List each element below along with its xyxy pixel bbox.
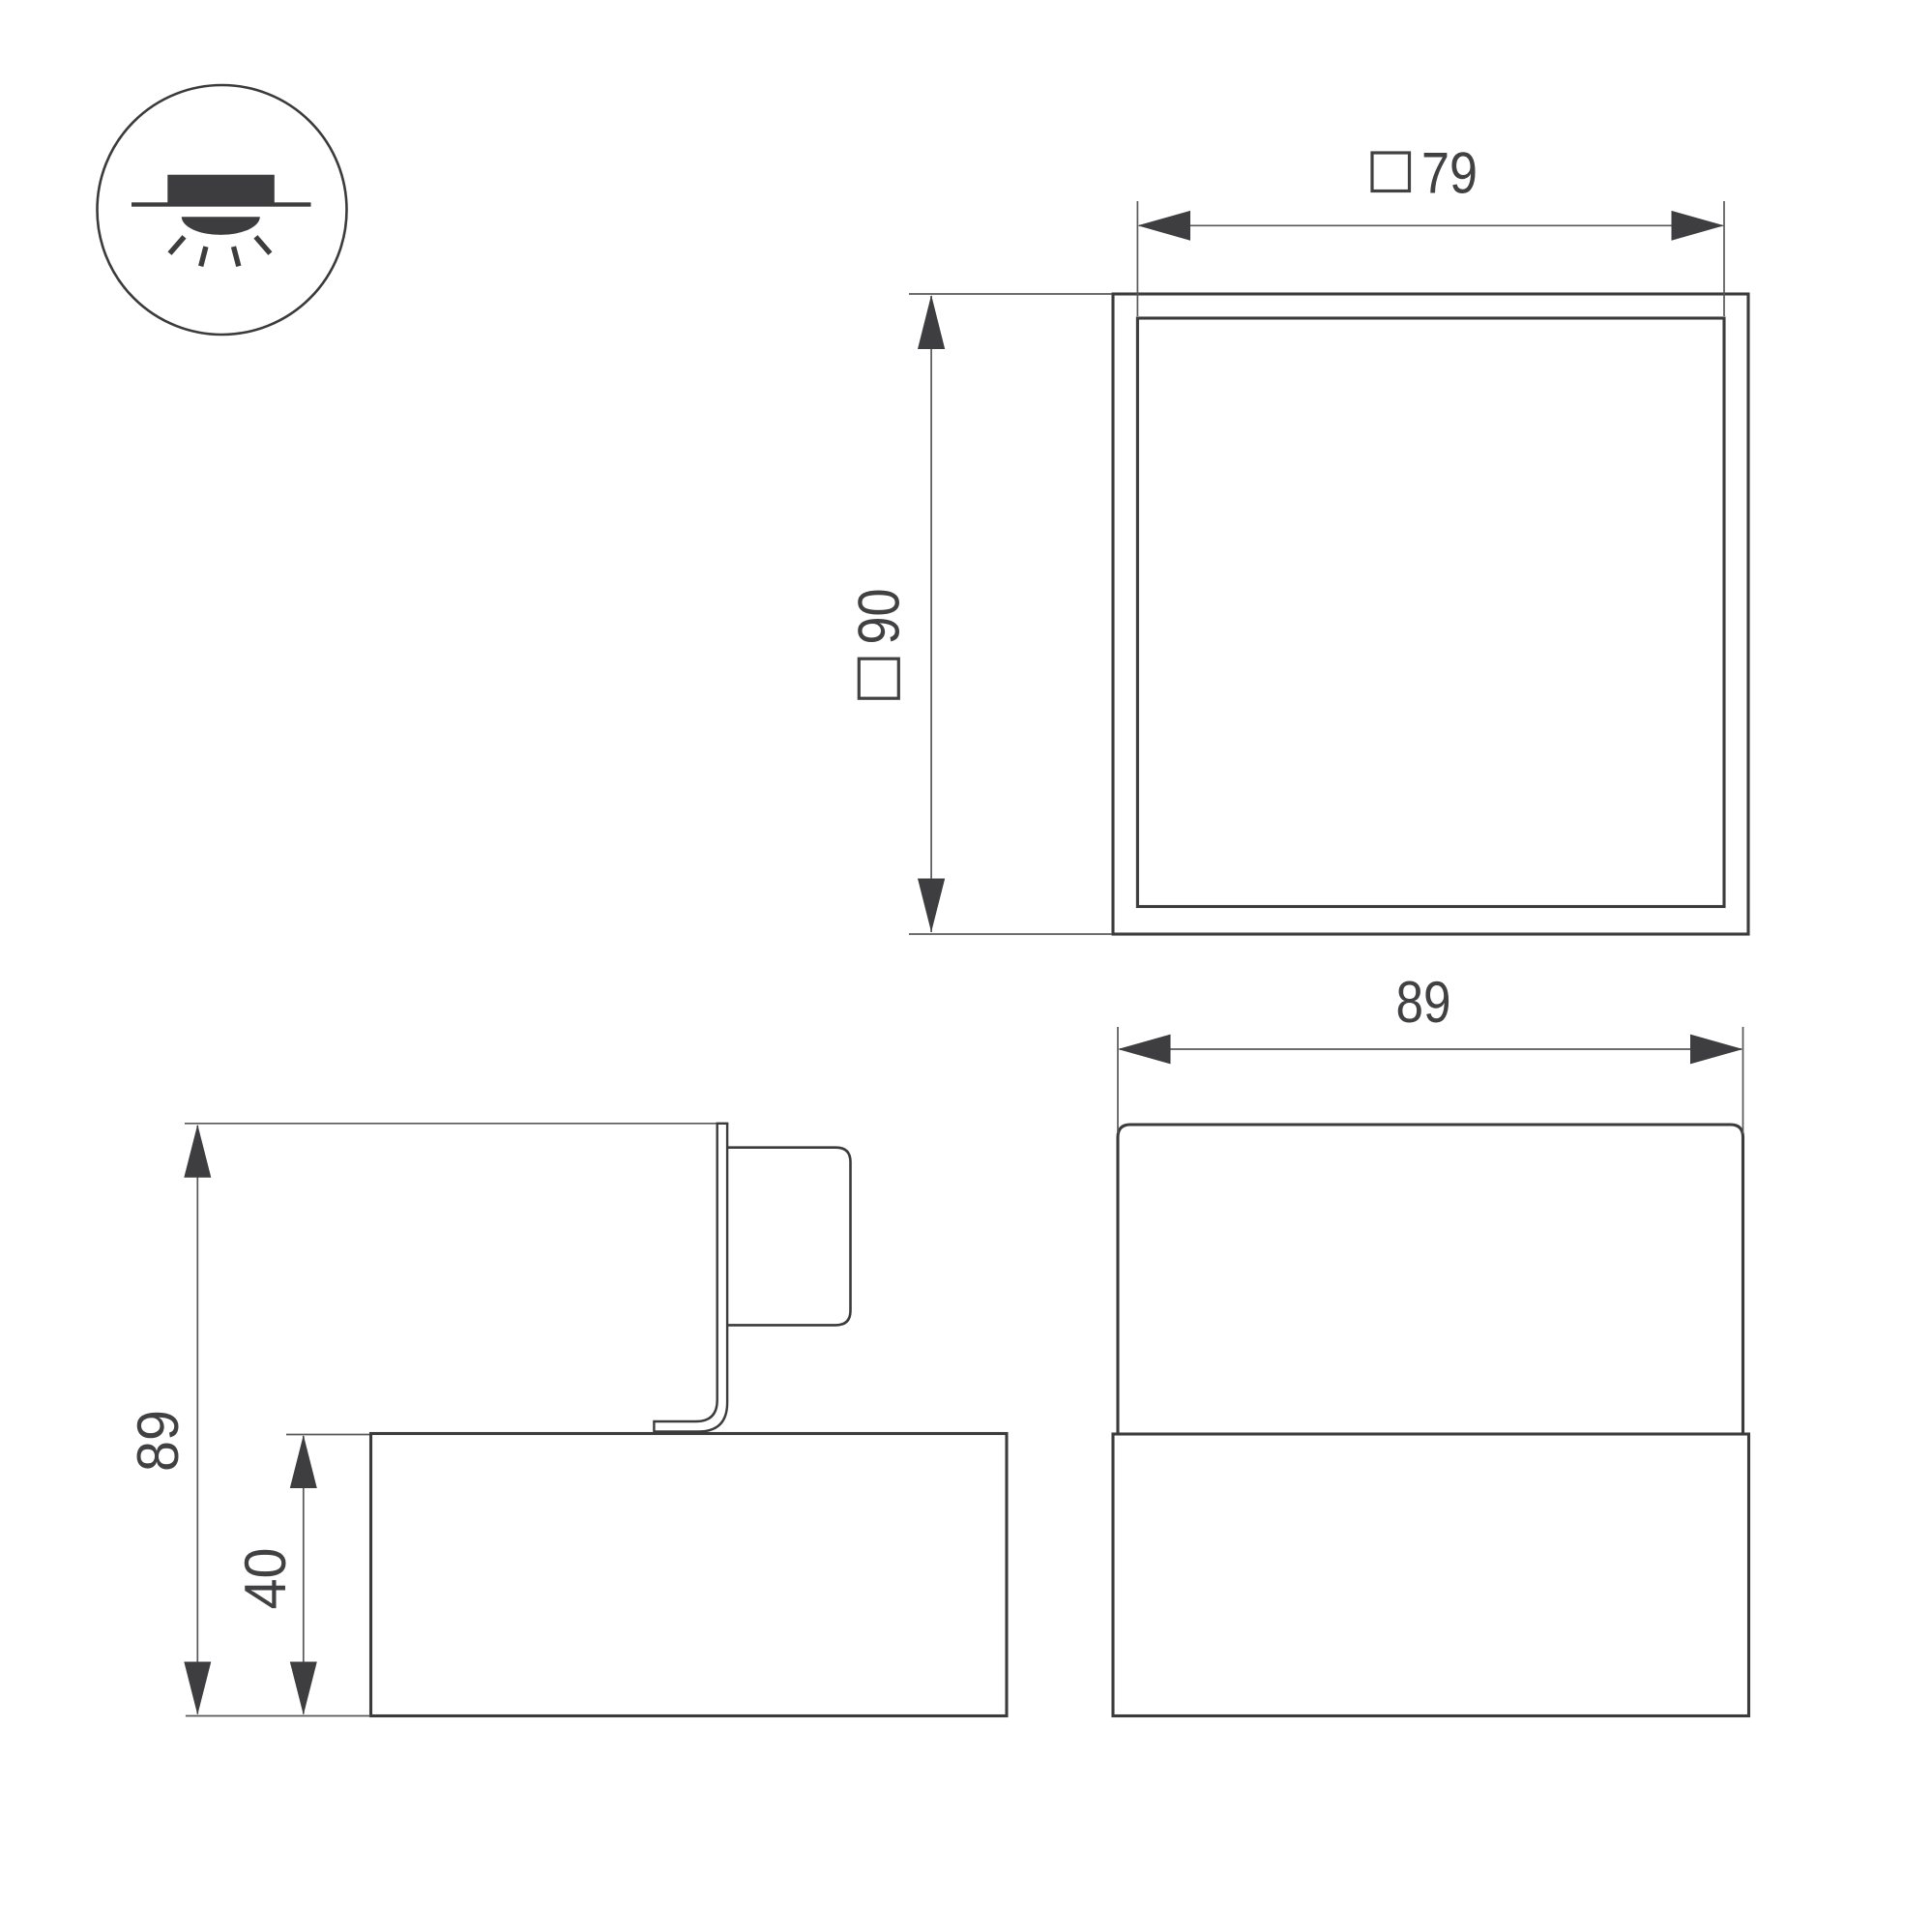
svg-text:89: 89 <box>125 1410 190 1472</box>
svg-text:90: 90 <box>846 589 912 645</box>
svg-text:79: 79 <box>1421 140 1478 206</box>
svg-text:40: 40 <box>232 1548 298 1610</box>
svg-text:89: 89 <box>1396 969 1451 1035</box>
